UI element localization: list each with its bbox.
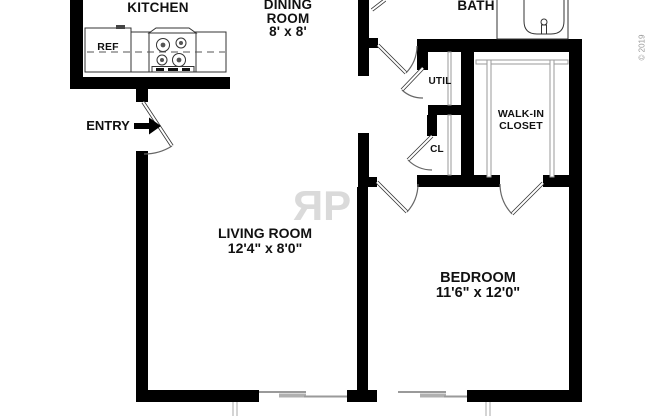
sliding-door-bedroom (398, 392, 467, 398)
wall-living-left (136, 151, 148, 402)
bathtub-icon (497, 0, 568, 39)
stove-icon (149, 28, 196, 72)
walkin-label: WALK-IN CLOSET (498, 109, 544, 132)
walkin-door (500, 183, 543, 214)
wall-kitchen-bottom (70, 77, 230, 89)
util-label: UTIL (428, 76, 451, 88)
wall-closet-divider (461, 52, 474, 175)
kitchen-label: KITCHEN (127, 1, 188, 15)
dining-label-line1: DINING (264, 0, 312, 12)
cl-door (408, 136, 432, 170)
watermark-letter-r: R (306, 188, 323, 224)
walkin-label-line2: CLOSET (498, 121, 544, 133)
wall-cl-stub (427, 115, 437, 136)
bedroom-label-name: BEDROOM (436, 271, 520, 286)
bath-label: BATH (457, 0, 494, 13)
wall-divider-foot (347, 390, 377, 402)
wall-util-left (417, 52, 428, 70)
ref-label: REF (97, 42, 119, 54)
cl-label: CL (430, 144, 444, 156)
wall-right (569, 40, 582, 402)
floor-plan: KITCHEN DINING ROOM 8' x 8' BATH REF ENT… (0, 0, 652, 416)
bedroom-dimensions: 11'6" x 12'0" (436, 286, 520, 301)
living-label-name: LIVING ROOM (218, 226, 312, 241)
wall-hall-upper (358, 0, 369, 76)
wall-entry-stub (136, 89, 148, 102)
wall-bedroom-door-stub (368, 177, 377, 187)
wall-bath-door-stub (369, 38, 378, 48)
wall-hall-lower (358, 133, 369, 187)
dining-label: DINING ROOM 8' x 8' (264, 0, 312, 39)
watermark-logo: RP (306, 188, 338, 224)
bedroom-door (377, 182, 418, 212)
living-label: LIVING ROOM 12'4" x 8'0" (218, 226, 312, 255)
walkin-label-line1: WALK-IN (498, 109, 544, 121)
wall-closet-bottom-right (543, 175, 582, 187)
wall-living-bedroom-divider (357, 187, 368, 390)
dining-dimensions: 8' x 8' (264, 25, 312, 39)
watermark-letter-p: P (323, 182, 338, 229)
living-dimensions: 12'4" x 8'0" (218, 241, 312, 256)
patio-divider-lines (233, 402, 490, 416)
wall-living-bottom (136, 390, 259, 402)
entry-label: ENTRY (86, 118, 130, 133)
wall-bath-bottom (417, 39, 582, 52)
bedroom-label: BEDROOM 11'6" x 12'0" (436, 271, 520, 301)
top-cutoff-door (372, 0, 385, 10)
wall-bedroom-bottom (467, 390, 582, 402)
sliding-door-living (259, 392, 347, 398)
copyright-text: © 2019 (638, 1, 647, 61)
dining-label-line2: ROOM (264, 12, 312, 26)
wall-kitchen-left (70, 0, 83, 89)
bath-door (378, 45, 417, 73)
